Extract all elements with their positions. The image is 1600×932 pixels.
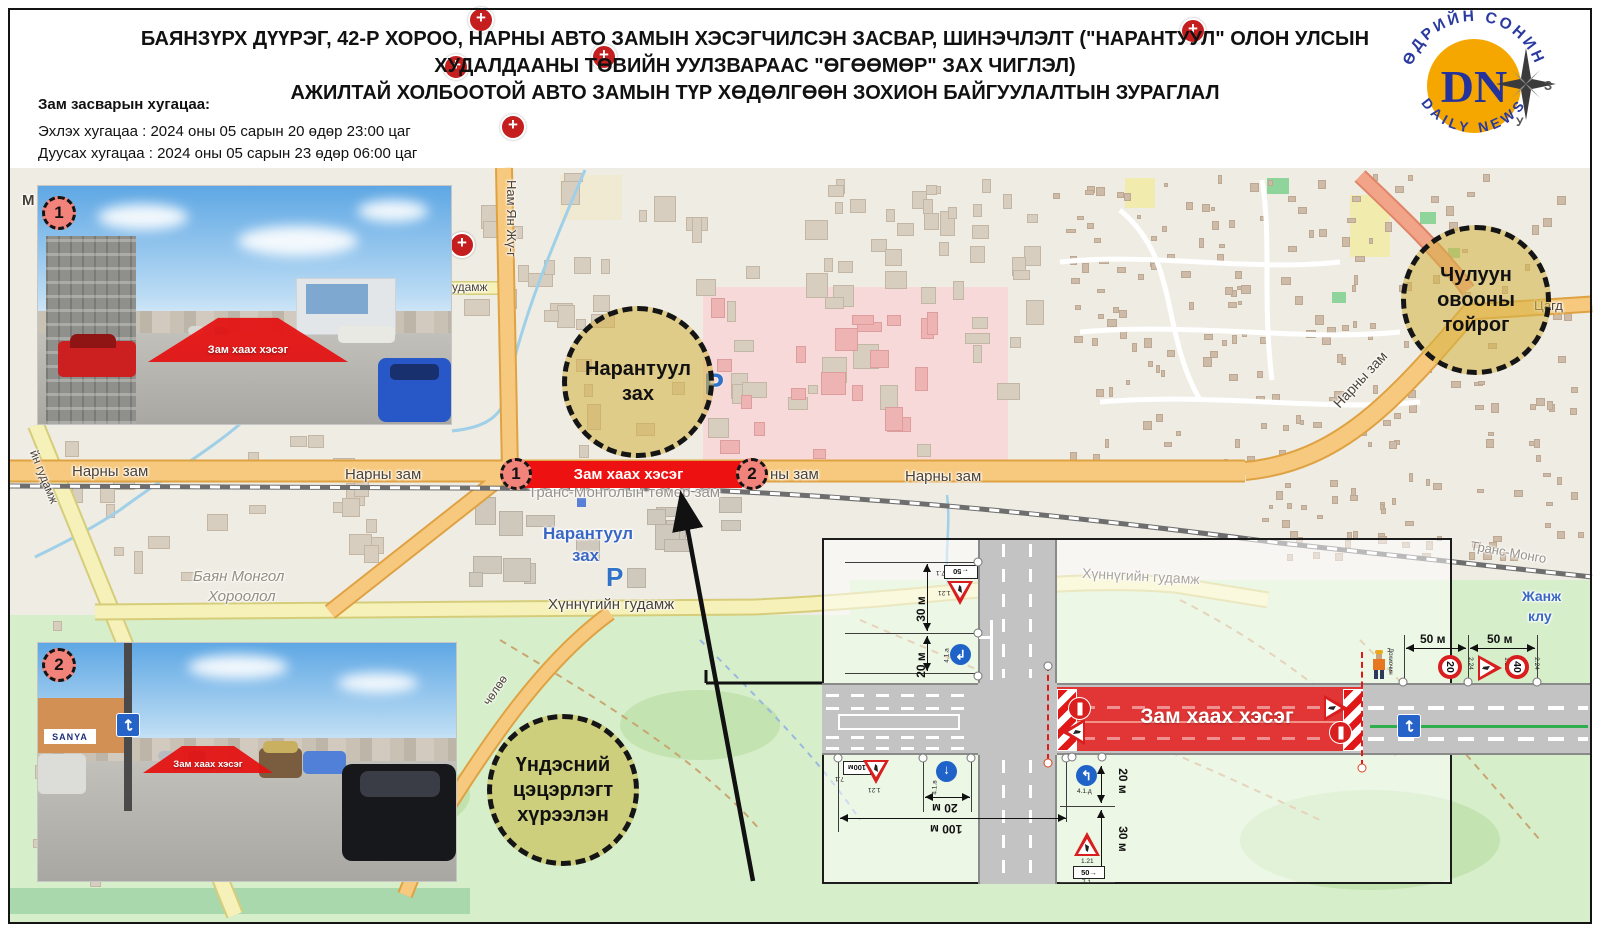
map-label-fragment: М: [22, 192, 35, 209]
badge-number: 1: [511, 464, 520, 484]
road-label-narny-2: Нарны зам: [345, 466, 421, 483]
cloud: [188, 655, 288, 679]
circle-label: Чулуун: [1440, 263, 1512, 288]
road-label-left-street: йн гудамж: [27, 448, 61, 506]
circle-label: овооны: [1437, 288, 1515, 313]
cloud: [98, 204, 188, 230]
road-label-khunnu-1: Хүннүгийн гудамж: [548, 596, 674, 613]
poi-label-narantuul-2: зах: [572, 546, 599, 566]
poster-page: БАЯНЗҮРХ ДҮҮРЭГ, 42-Р ХОРОО, НАРНЫ АВТО …: [0, 0, 1600, 932]
badge-number: 1: [54, 203, 63, 223]
red-car-roof: [70, 334, 116, 348]
road-label-khunnu-2: Хүннүгийн гудамж: [1082, 565, 1200, 587]
photo-billboard: [306, 284, 368, 314]
poi-label-janj: Жанж: [1522, 588, 1561, 604]
road-label-cholo: чөлөө: [480, 672, 510, 707]
blue-truck: [303, 751, 346, 774]
poi-label-narantuul-1: Нарантуул: [543, 524, 633, 544]
u-turn-sign-icon: ↩: [116, 713, 140, 737]
district-label-bayan-2: Хороолол: [208, 588, 276, 605]
highlight-circle-park: Үндэсний цэцэрлэгт хүрээлэн: [487, 714, 639, 866]
logo-initials: DN: [1441, 61, 1507, 112]
hay-load: [263, 741, 298, 753]
daily-news-logo: DN ӨДРИЙН СОНИН DAILY NEWS З У: [1392, 2, 1556, 166]
circle-label: хүрээлэн: [517, 803, 609, 828]
street-photo-2: SANYA Зам хаах хэсэг ↩ 2: [37, 642, 457, 882]
title-line-1: БАЯНЗҮРХ ДҮҮРЭГ, 42-Р ХОРОО, НАРНЫ АВТО …: [120, 26, 1390, 53]
map-point-badge-1: 1: [500, 458, 532, 490]
storefront-sign: SANYA: [44, 729, 96, 744]
compass-east-label: З: [1544, 78, 1552, 93]
street-photo-1: Зам хаах хэсэг 1: [37, 185, 452, 425]
circle-label: Нарантуул: [585, 357, 691, 382]
cloud: [358, 200, 428, 222]
photo-building-orange: [38, 698, 126, 753]
title-line-2: ХУДАЛДААНЫ ТӨВИЙН УУЛЗВАРААС "ӨГӨӨМӨР" З…: [120, 53, 1390, 80]
road-label-narny-fragment: ны зам: [770, 466, 819, 483]
page-title: БАЯНЗҮРХ ДҮҮРЭГ, 42-Р ХОРОО, НАРНЫ АВТО …: [120, 26, 1390, 107]
schedule-heading: Зам засварын хугацаа:: [38, 96, 417, 113]
parking-icon: P: [606, 562, 623, 593]
road-label-nam-yan: Нам Ян Жү-г: [504, 180, 519, 257]
black-car-window: [360, 771, 440, 797]
storefront-name: SANYA: [52, 732, 88, 742]
photo-badge-1: 1: [42, 196, 76, 230]
circle-label: цэцэрлэгт: [513, 778, 613, 803]
schedule-end: Дуусах хугацаа : 2024 оны 05 сарын 23 өд…: [38, 145, 417, 162]
closure-overlay-label: Зам хаах хэсэг: [208, 344, 288, 356]
district-label-bayan-1: Баян Монгол: [193, 568, 284, 585]
road-label-udamj: удамж: [452, 280, 488, 294]
white-van: [38, 754, 86, 794]
hospital-icon: +: [449, 232, 475, 258]
circle-label: тойрог: [1443, 313, 1510, 338]
highlight-circle-narantuul: Нарантуул зах: [562, 306, 714, 458]
closure-overlay-label: Зам хаах хэсэг: [173, 759, 242, 770]
road-label-narny-3: Нарны зам: [905, 468, 981, 485]
circle-label: зах: [622, 382, 654, 407]
badge-number: 2: [54, 655, 63, 675]
closure-bar-label: Зам хаах хэсэг: [574, 466, 684, 483]
cloud: [338, 673, 418, 693]
blue-car-window: [390, 364, 439, 380]
white-suv: [338, 326, 395, 343]
road-label-narny-1: Нарны зам: [72, 463, 148, 480]
railway-label-short: Транс-Монго: [1469, 538, 1547, 566]
road-label-narny-diagonal: Нарны зам: [1330, 348, 1390, 411]
photo-badge-2: 2: [42, 648, 76, 682]
cloud: [238, 226, 358, 256]
highlight-circle-chuluun: Чулуун овооны тойрог: [1401, 225, 1551, 375]
map-point-badge-2: 2: [736, 458, 768, 490]
photo-building-left: [46, 236, 136, 424]
poi-label-klub: клу: [1528, 608, 1552, 624]
circle-label: Үндэсний: [516, 753, 610, 778]
schedule-start: Эхлэх хугацаа : 2024 оны 05 сарын 20 өдө…: [38, 123, 417, 140]
badge-number: 2: [747, 464, 756, 484]
road-closure-bar: Зам хаах хэсэг: [515, 461, 742, 488]
hospital-icon: +: [500, 114, 526, 140]
repair-schedule: Зам засварын хугацаа: Эхлэх хугацаа : 20…: [38, 96, 417, 162]
compass-south-label: У: [1516, 115, 1524, 129]
logo-graphic: DN ӨДРИЙН СОНИН DAILY NEWS З У: [1392, 2, 1556, 166]
